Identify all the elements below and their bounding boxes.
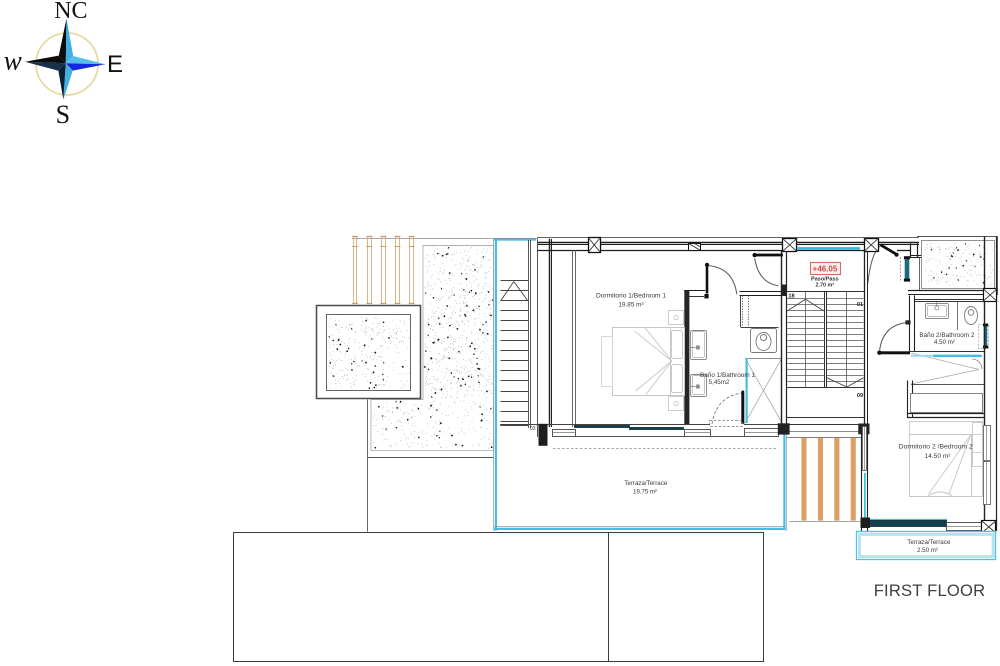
svg-text:Terraza/Terrace: Terraza/Terrace: [907, 539, 951, 546]
svg-text:Dormitorio 1/Bedroom 1: Dormitorio 1/Bedroom 1: [596, 293, 666, 300]
svg-text:Paso/Pass: Paso/Pass: [811, 276, 839, 282]
svg-text:2.50 m²: 2.50 m²: [917, 547, 938, 554]
svg-text:18: 18: [788, 293, 794, 299]
svg-text:Baño 2/Bathroom 2: Baño 2/Bathroom 2: [919, 332, 975, 339]
svg-text:5,45m2: 5,45m2: [709, 379, 730, 386]
svg-text:Baño 1/Bathroom 1: Baño 1/Bathroom 1: [700, 372, 756, 379]
svg-text:19.85 m²: 19.85 m²: [618, 302, 643, 309]
svg-text:FIRST FLOOR: FIRST FLOOR: [874, 581, 986, 600]
svg-text:+46.05: +46.05: [813, 265, 838, 274]
svg-text:19.75 m²: 19.75 m²: [633, 490, 657, 496]
svg-text:01: 01: [857, 302, 863, 308]
svg-text:09: 09: [857, 393, 863, 399]
svg-text:Dormitorio 2 /Bedroom 2: Dormitorio 2 /Bedroom 2: [899, 444, 973, 451]
svg-text:S: S: [56, 100, 70, 129]
svg-text:E: E: [107, 51, 123, 78]
svg-text:14.50 m²: 14.50 m²: [924, 453, 951, 460]
svg-text:Terraza/Terrace: Terraza/Terrace: [624, 480, 668, 487]
svg-text:4.50 m²: 4.50 m²: [934, 339, 955, 346]
svg-text:03: 03: [530, 426, 536, 432]
svg-text:NC: NC: [54, 0, 87, 24]
svg-text:2.70 m²: 2.70 m²: [816, 283, 835, 289]
svg-text:w: w: [4, 46, 22, 76]
